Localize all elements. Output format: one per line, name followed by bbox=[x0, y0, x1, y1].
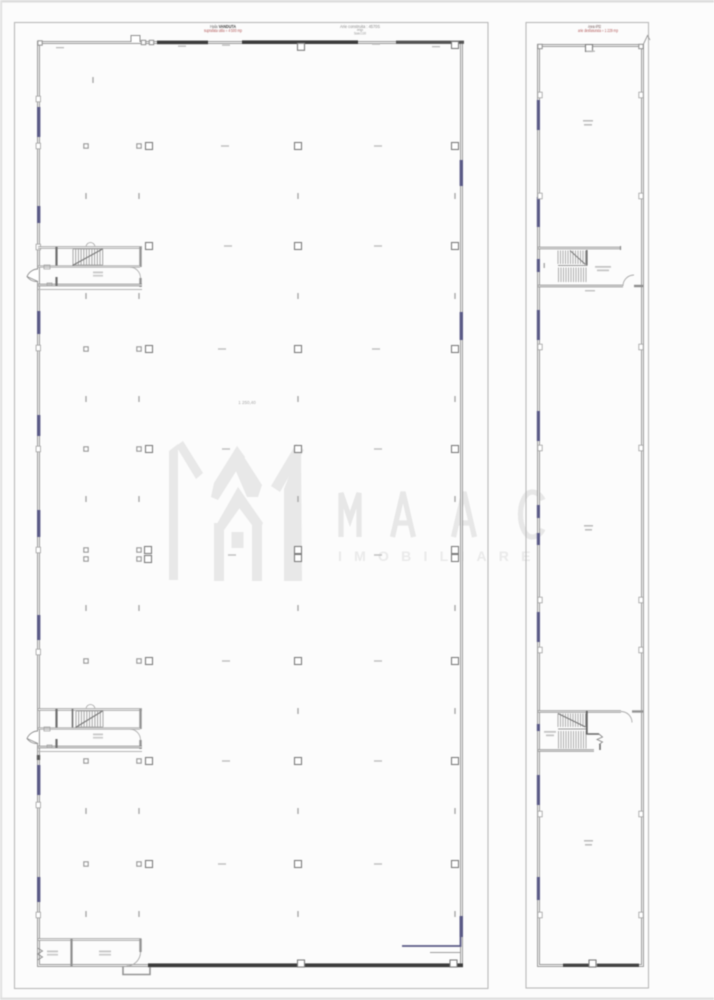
svg-text:Scara 1:100: Scara 1:100 bbox=[354, 31, 366, 35]
svg-text:1 250,40: 1 250,40 bbox=[238, 400, 256, 405]
svg-text:arie desfasurata = 1 229 mp: arie desfasurata = 1 229 mp bbox=[578, 28, 619, 33]
svg-text:suprafata utila = 4 500 mp: suprafata utila = 4 500 mp bbox=[204, 28, 243, 33]
svg-text:IMOBILIARE: IMOBILIARE bbox=[338, 548, 541, 564]
